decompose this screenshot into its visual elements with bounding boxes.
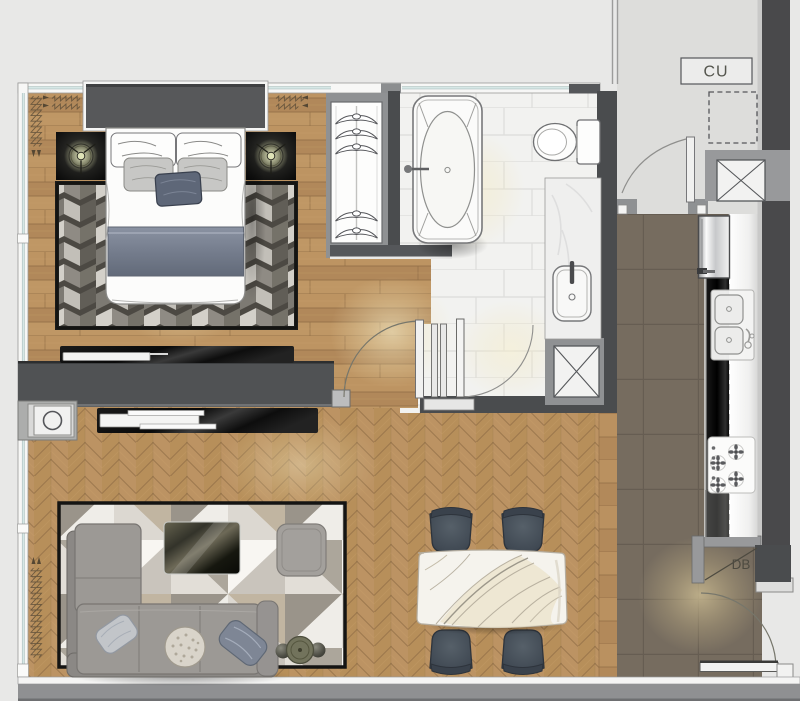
svg-text:CU: CU xyxy=(703,64,728,81)
svg-text:DB: DB xyxy=(732,557,751,572)
